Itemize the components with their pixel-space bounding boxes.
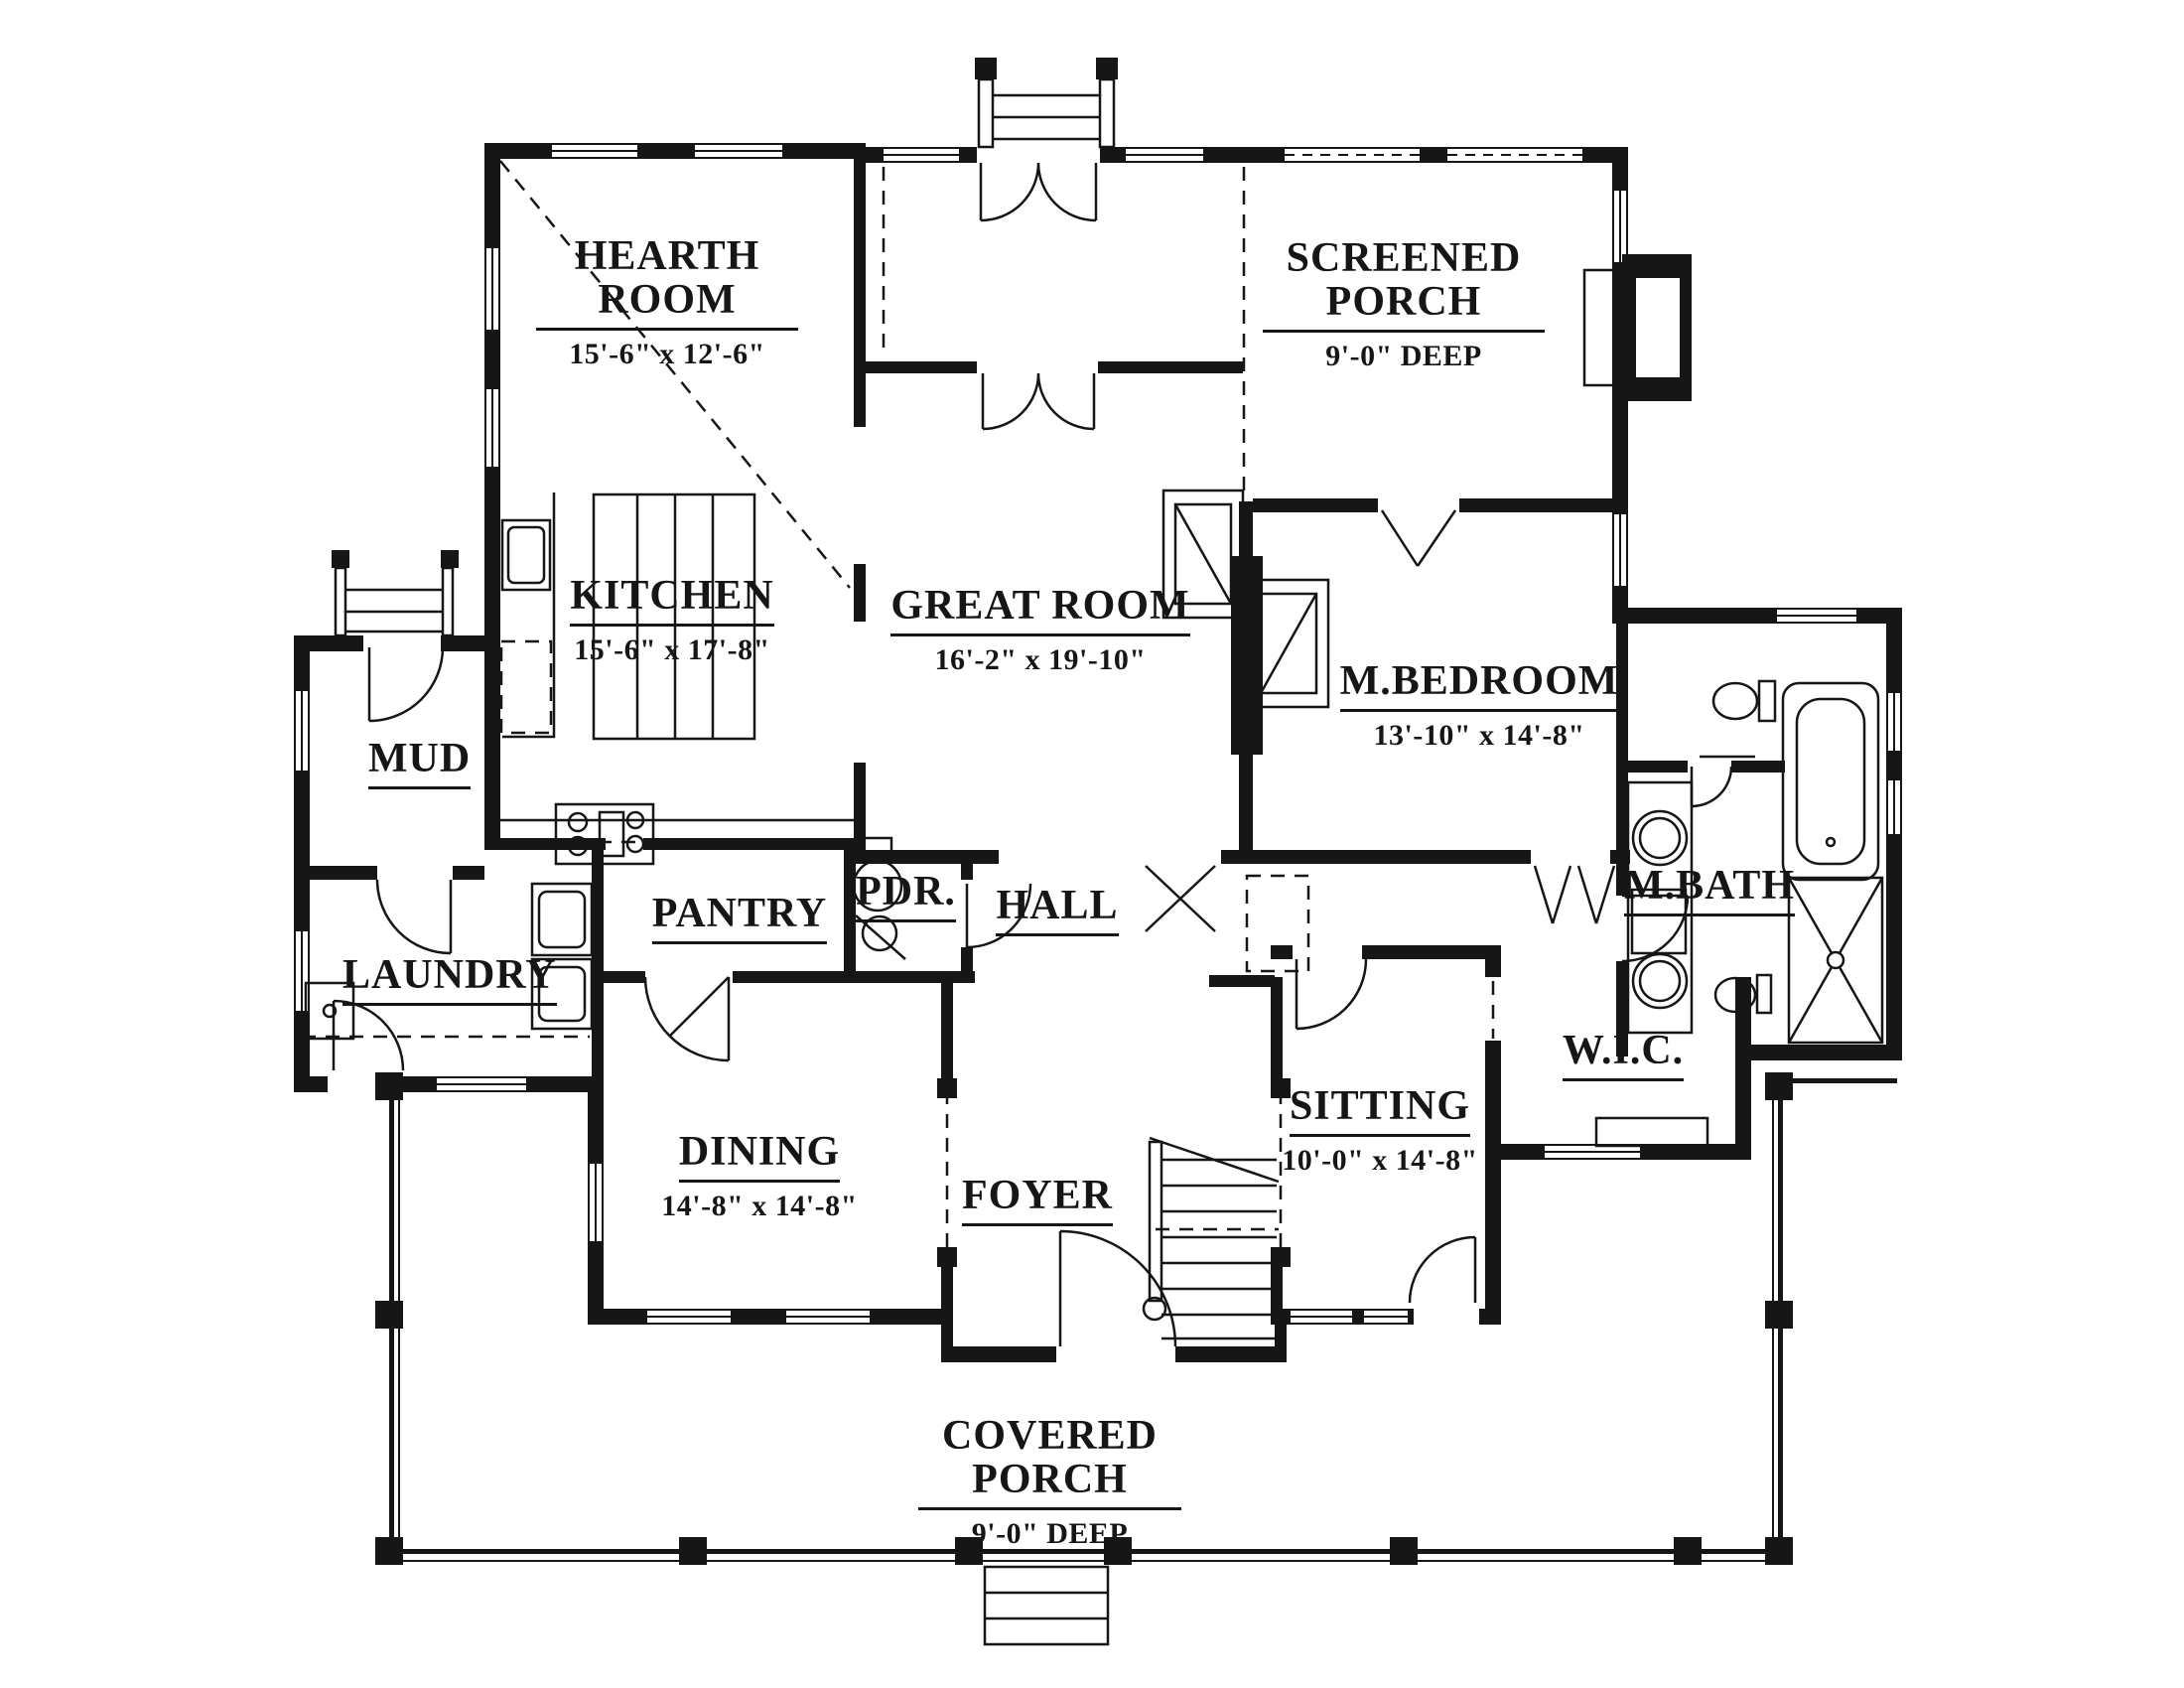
room-name: SITTING [1290,1084,1470,1137]
room-label-mbath: M.BATH [1620,864,1799,916]
room-label-wic: W.I.C. [1549,1029,1698,1081]
room-label-foyer: FOYER [953,1174,1122,1226]
room-label-mud: MUD [347,737,491,789]
room-dims: 15'-6" x 12'-6" [536,339,798,370]
master-bath-fixtures [1628,681,1882,1043]
floor-plan: HEARTH ROOM 15'-6" x 12'-6" SCREENED POR… [0,0,2184,1688]
room-label-pantry: PANTRY [650,892,829,944]
room-name: KITCHEN [570,574,773,627]
room-name: GREAT ROOM [890,584,1189,636]
room-dims: 16'-2" x 19'-10" [874,644,1207,676]
room-dims: 15'-6" x 17'-8" [536,634,808,666]
room-label-laundry: LAUNDRY [342,953,556,1006]
rear-deck-steps [975,58,1118,147]
room-name: M.BEDROOM [1340,659,1619,712]
wic-dresser [1596,1118,1707,1146]
room-name: HEARTH ROOM [536,234,798,331]
room-label-pdr: PDR. [849,870,963,922]
porch-front-steps [985,1567,1108,1644]
room-name: HALL [996,884,1118,936]
kitchen-range [500,804,854,864]
room-dims: 14'-8" x 14'-8" [630,1191,888,1222]
room-name: DINING [679,1130,840,1183]
room-label-hearth: HEARTH ROOM 15'-6" x 12'-6" [536,234,798,370]
room-dims: 10'-0" x 14'-8" [1251,1145,1509,1177]
room-name: M.BATH [1624,864,1795,916]
room-label-great-room: GREAT ROOM 16'-2" x 19'-10" [874,584,1207,676]
room-label-sitting: SITTING 10'-0" x 14'-8" [1251,1084,1509,1177]
room-name: W.I.C. [1563,1029,1684,1081]
room-name: MUD [368,737,471,789]
room-name: SCREENED PORCH [1263,236,1545,333]
mud-entry-steps [332,550,459,635]
room-label-mbedroom: M.BEDROOM 13'-10" x 14'-8" [1308,659,1650,752]
room-name: PDR. [856,870,956,922]
screened-porch-fireplace [1584,254,1692,401]
room-name: COVERED PORCH [918,1414,1181,1510]
room-label-hall: HALL [978,884,1137,936]
room-label-covered-porch: COVERED PORCH 9'-0" DEEP [918,1414,1181,1550]
room-dims: 9'-0" DEEP [918,1518,1181,1550]
room-dims: 13'-10" x 14'-8" [1308,720,1650,752]
room-name: FOYER [962,1174,1113,1226]
room-name: LAUNDRY [342,953,557,1006]
room-label-kitchen: KITCHEN 15'-6" x 17'-8" [536,574,808,666]
room-label-dining: DINING 14'-8" x 14'-8" [630,1130,888,1222]
room-name: PANTRY [652,892,827,944]
room-dims: 9'-0" DEEP [1263,341,1545,372]
room-label-screened-porch: SCREENED PORCH 9'-0" DEEP [1263,236,1545,372]
